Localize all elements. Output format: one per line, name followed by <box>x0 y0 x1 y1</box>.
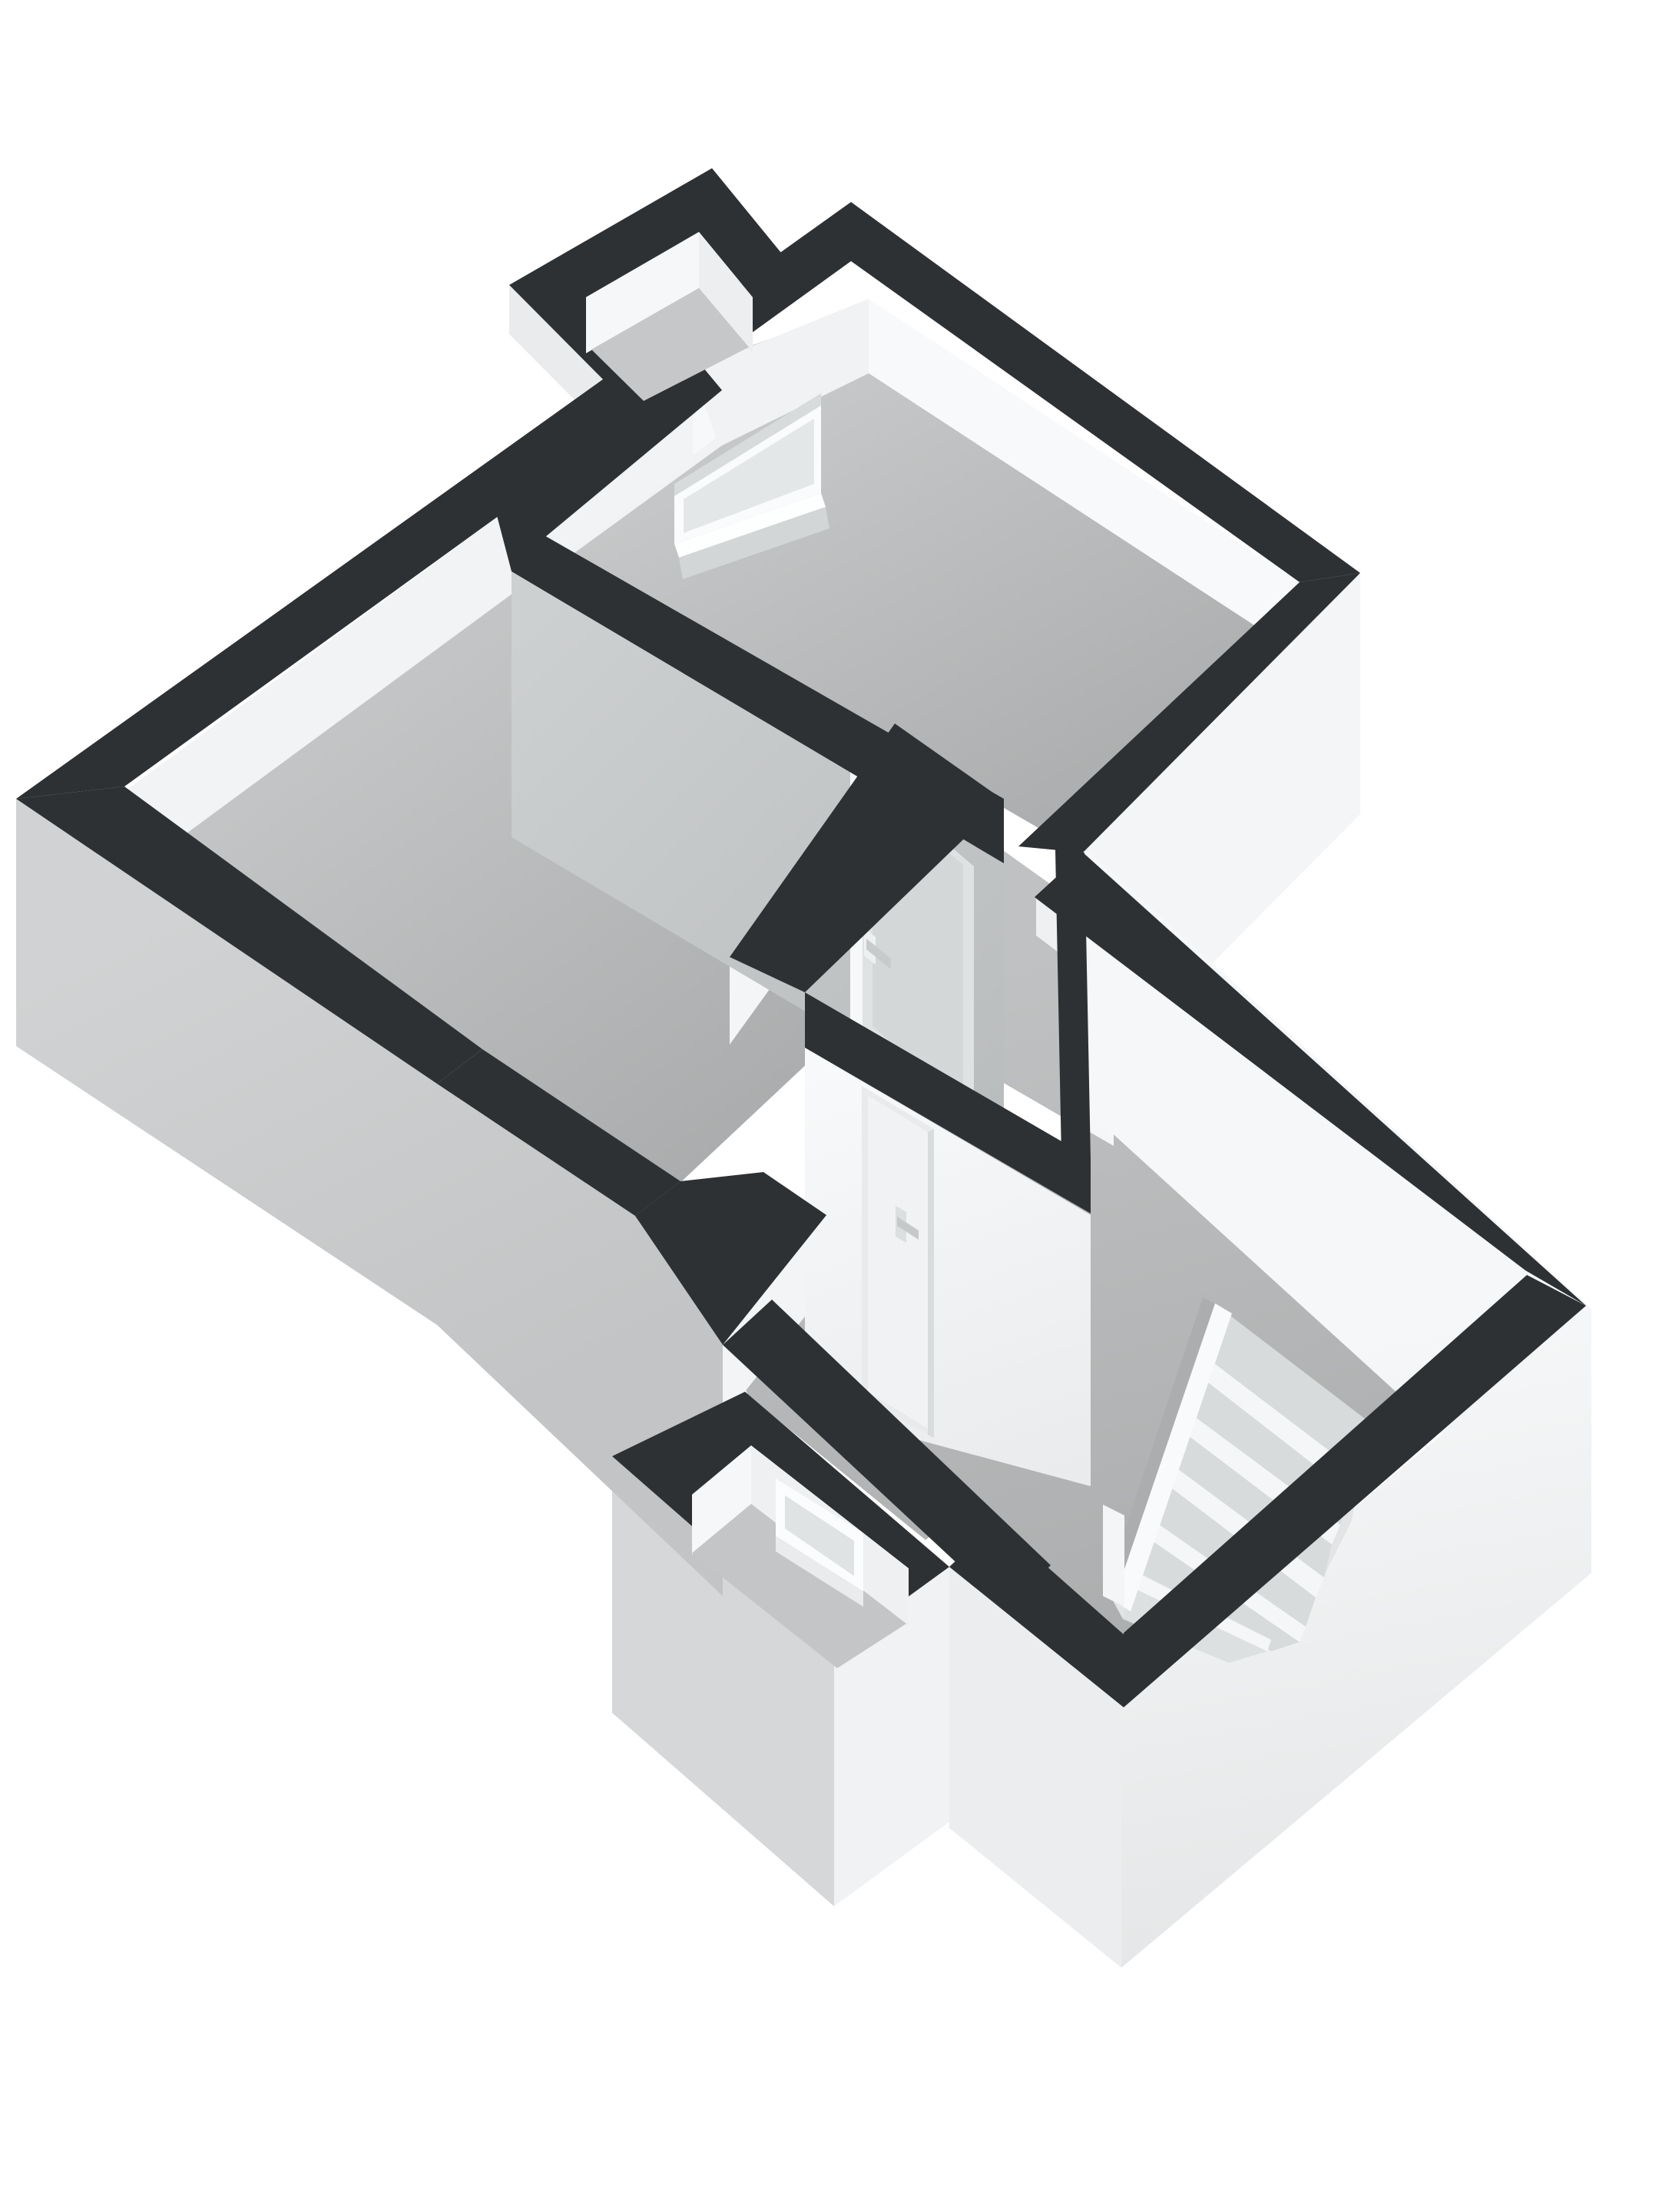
stair-side-stub <box>1103 1505 1124 1607</box>
floorplan-svg <box>0 0 1659 2212</box>
door2-jamb-line <box>928 1129 934 1438</box>
floorplan-3d-render <box>0 0 1659 2212</box>
wall-top-stair-west <box>1055 849 1091 1160</box>
door2-leaf <box>868 1095 928 1429</box>
